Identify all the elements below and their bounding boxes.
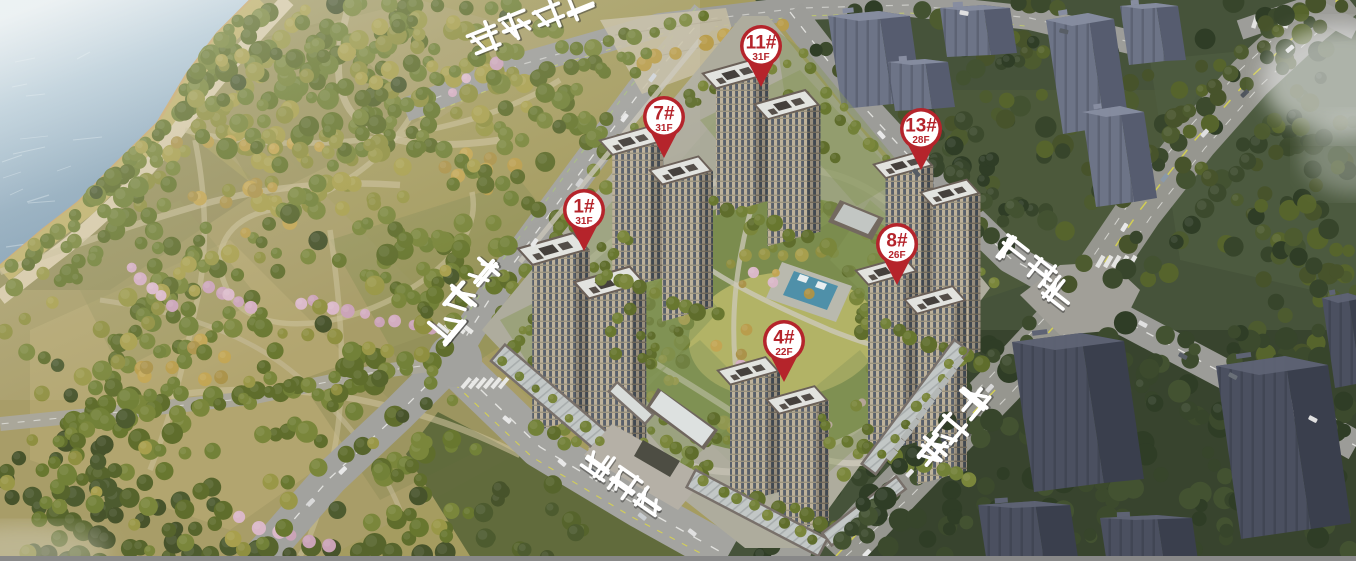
- svg-text:13#: 13#: [905, 116, 937, 137]
- svg-text:4#: 4#: [773, 328, 795, 349]
- svg-text:26F: 26F: [888, 250, 905, 261]
- svg-text:22F: 22F: [775, 347, 792, 358]
- svg-text:31F: 31F: [655, 123, 672, 134]
- svg-text:31F: 31F: [752, 52, 769, 63]
- svg-text:7#: 7#: [653, 104, 675, 125]
- svg-text:31F: 31F: [575, 216, 592, 227]
- svg-text:11#: 11#: [746, 33, 777, 54]
- svg-text:28F: 28F: [912, 135, 929, 146]
- svg-text:1#: 1#: [573, 197, 595, 218]
- svg-text:8#: 8#: [886, 231, 908, 252]
